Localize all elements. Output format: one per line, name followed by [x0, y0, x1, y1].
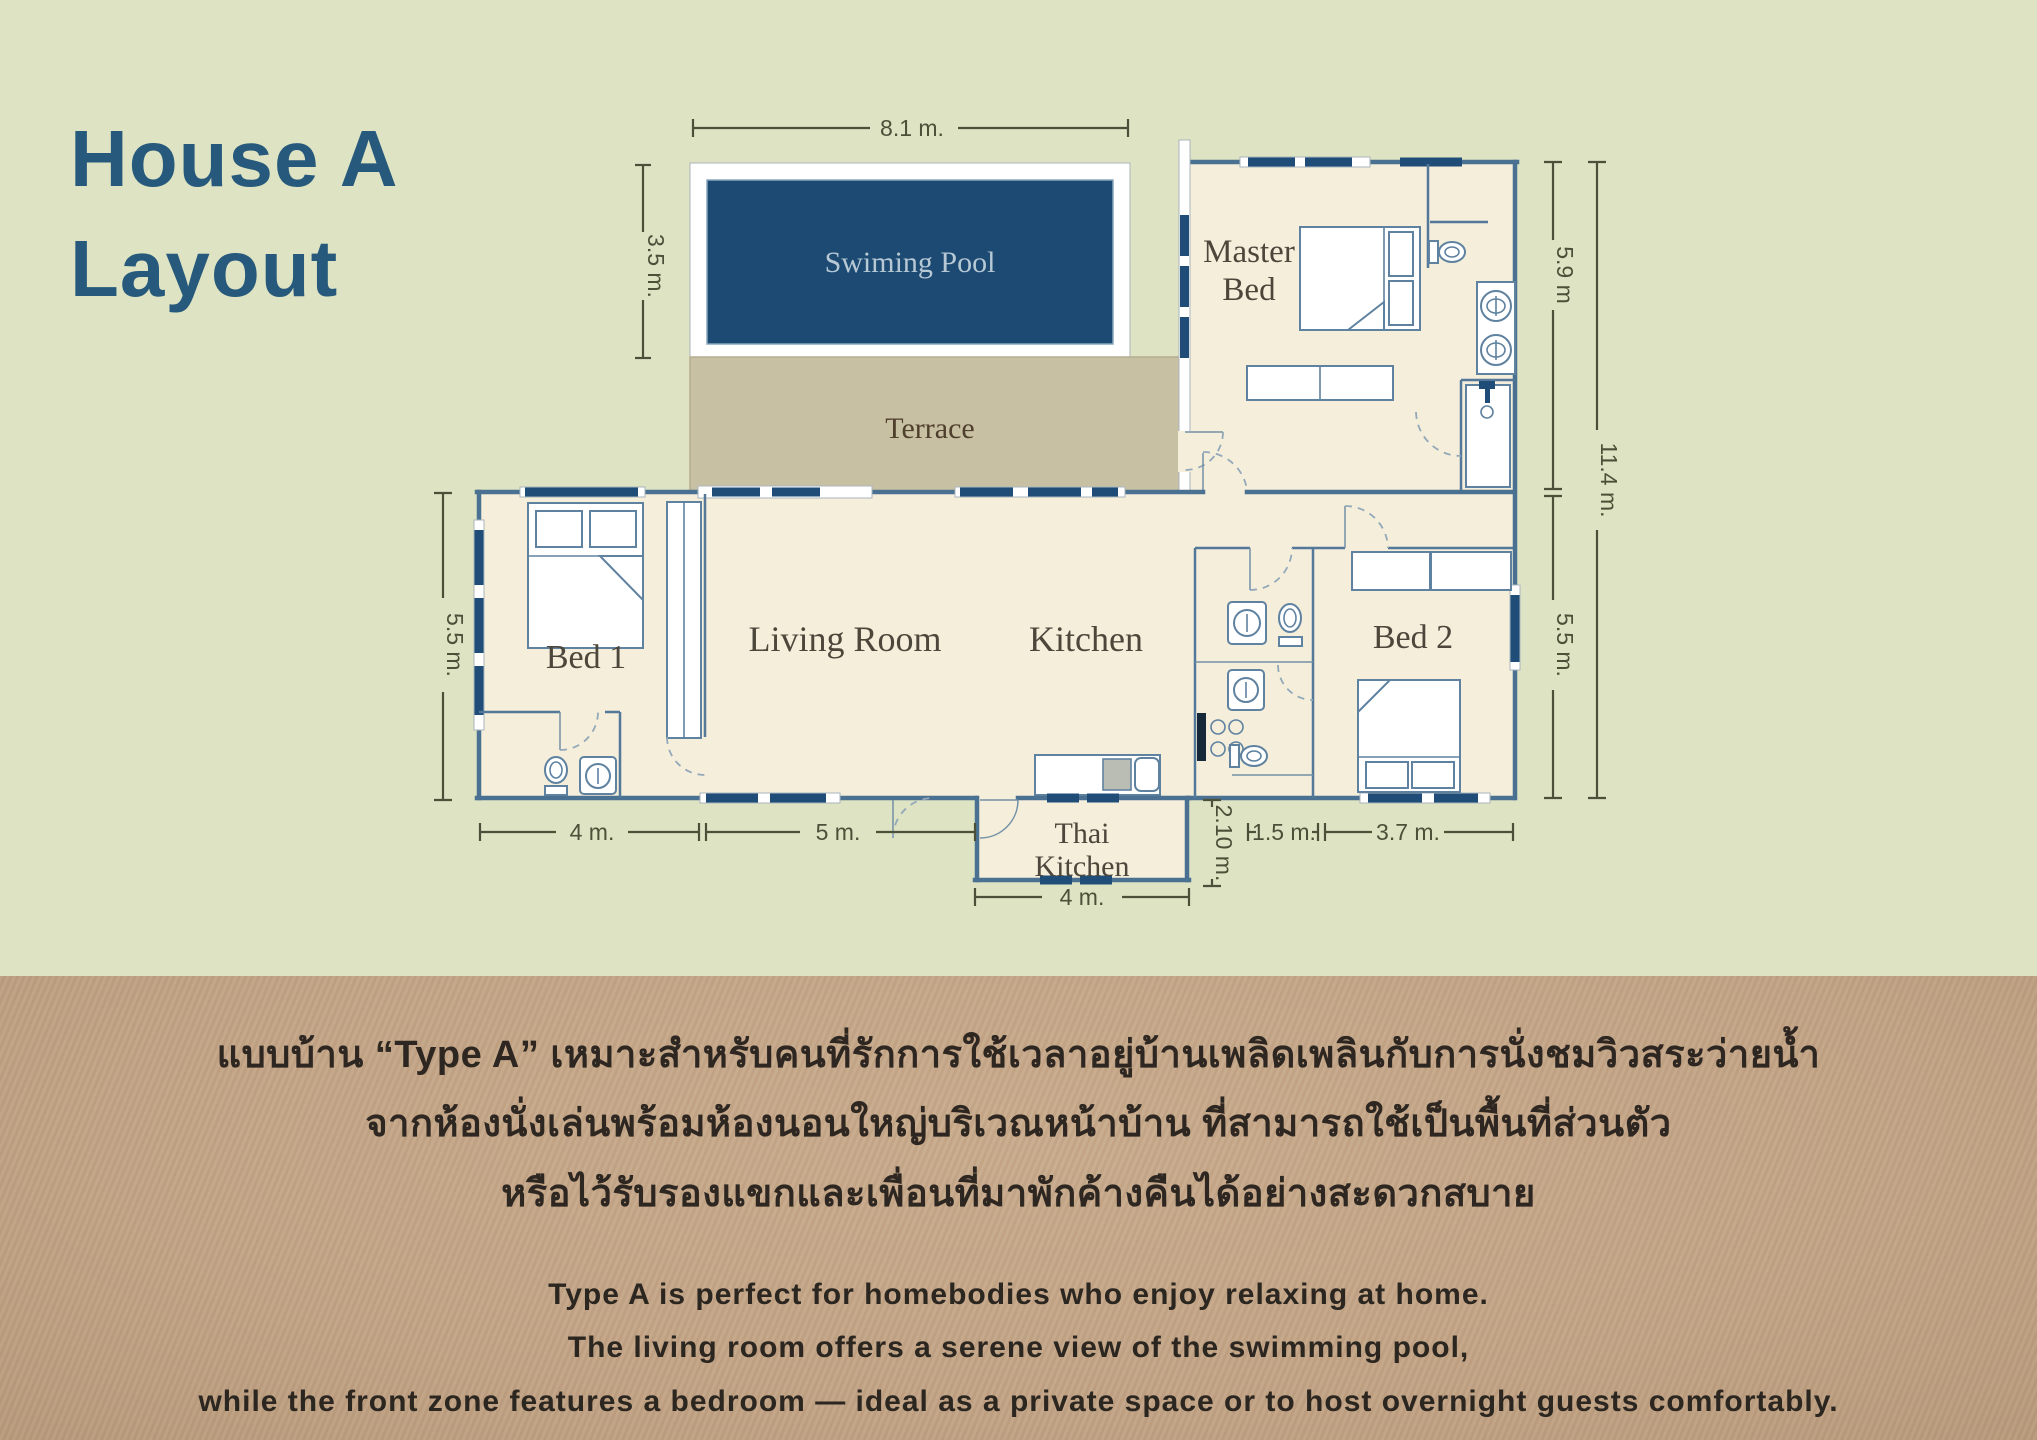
sink-icon: [580, 757, 616, 794]
pool-label: Swiming Pool: [825, 246, 996, 279]
dim-pool-width: 8.1 m.: [880, 115, 944, 141]
page: Swiming Pool Terrace: [0, 0, 2037, 1440]
bed-icon: [1300, 227, 1420, 330]
swimming-pool: Swiming Pool: [690, 163, 1130, 361]
dim-right-bottom: 5.5 m.: [1552, 613, 1578, 677]
double-sink-icon: [1477, 282, 1515, 374]
wardrobe-icon: [1431, 552, 1511, 590]
english-line: Type A is perfect for homebodies who enj…: [40, 1274, 1997, 1315]
toilet-icon: [545, 757, 567, 795]
shower-icon: [1461, 380, 1515, 490]
dim-thai-kitchen-width: 4 m.: [1060, 884, 1105, 910]
english-line: The living room offers a serene view of …: [40, 1327, 1997, 1368]
dim-bottom-bed2: 3.7 m.: [1376, 819, 1440, 845]
thai-line: แบบบ้าน “Type A” เหมาะสำหรับคนที่รักการใ…: [60, 1030, 1977, 1081]
english-description: Type A is perfect for homebodies who enj…: [0, 1238, 2037, 1422]
bed-icon: [1358, 680, 1460, 792]
wardrobe-icon: [1352, 552, 1430, 590]
description-band: แบบบ้าน “Type A” เหมาะสำหรับคนที่รักการใ…: [0, 976, 2037, 1440]
dim-thai-kitchen-height: 2.10 m.: [1211, 805, 1237, 882]
dim-pool-height: 3.5 m.: [643, 234, 669, 298]
thai-kitchen-label: Thai: [1055, 817, 1110, 850]
toilet-icon: [1279, 604, 1302, 646]
page-title: House A Layout: [70, 104, 399, 323]
bed1-label: Bed 1: [546, 639, 626, 676]
master-bed-label: Bed: [1222, 272, 1276, 308]
kitchen-label: Kitchen: [1029, 619, 1143, 659]
master-bed-label: Master: [1203, 234, 1295, 270]
sink-icon: [1228, 670, 1264, 710]
bed2-label: Bed 2: [1373, 619, 1453, 656]
terrace-label: Terrace: [885, 412, 974, 445]
door-gap: [1178, 431, 1191, 472]
page-title-line2: Layout: [70, 214, 399, 324]
dim-left-height: 5.5 m.: [442, 613, 468, 677]
sink-icon: [1228, 602, 1266, 644]
dim-bottom-bed1: 4 m.: [570, 819, 615, 845]
terrace: Terrace: [690, 357, 1183, 492]
dim-bottom-bath: 1.5 m.: [1252, 819, 1316, 845]
page-title-line1: House A: [70, 104, 399, 214]
toilet-icon: [1429, 241, 1465, 263]
bed-icon: [528, 503, 643, 648]
dim-right-total: 11.4 m.: [1596, 443, 1622, 518]
thai-line: หรือไว้รับรองแขกและเพื่อนที่มาพักค้างคืน…: [60, 1169, 1977, 1220]
thai-line: จากห้องนั่งเล่นพร้อมห้องนอนใหญ่บริเวณหน้…: [60, 1099, 1977, 1150]
kitchen-counter: [1035, 755, 1160, 795]
dim-right-top: 5.9 m: [1552, 246, 1578, 304]
english-line: while the front zone features a bedroom …: [40, 1381, 1997, 1422]
thai-kitchen-label: Kitchen: [1035, 850, 1130, 883]
toilet-icon: [1230, 745, 1267, 767]
dim-bottom-living: 5 m.: [816, 819, 861, 845]
living-room-label: Living Room: [748, 619, 941, 659]
thai-description: แบบบ้าน “Type A” เหมาะสำหรับคนที่รักการใ…: [0, 976, 2037, 1220]
